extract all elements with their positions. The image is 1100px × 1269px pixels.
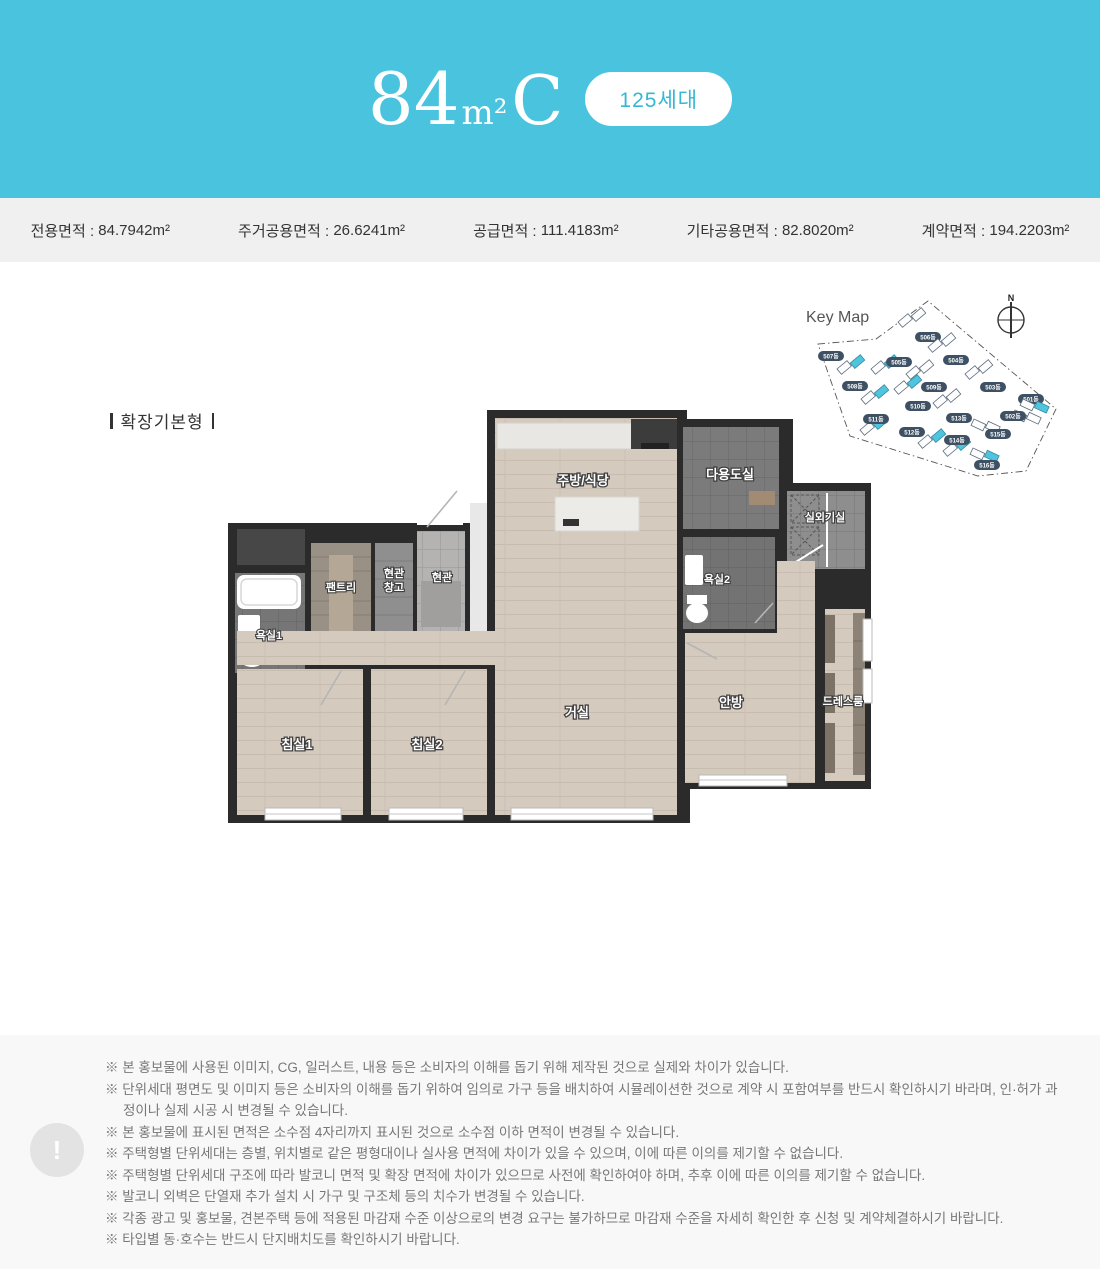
exclamation-icon: ! xyxy=(30,1123,84,1177)
side-shaft xyxy=(470,503,487,631)
building-501: 501동 xyxy=(1012,394,1044,428)
svg-text:512동: 512동 xyxy=(904,429,920,437)
svg-text:N: N xyxy=(1008,293,1015,303)
key-map-title: Key Map xyxy=(806,309,869,326)
building-516: 516동 xyxy=(970,444,1000,470)
svg-text:504동: 504동 xyxy=(948,357,964,365)
area-item-contract: 계약면적194.2203m² xyxy=(888,220,1100,241)
disclaimer-note: ※ 본 홍보물에 사용된 이미지, CG, 일러스트, 내용 등은 소비자의 이… xyxy=(105,1057,1065,1079)
area-item-residential-common: 주거공용면적26.6241m² xyxy=(204,220,439,241)
building-512: 512동 xyxy=(899,426,946,452)
label-utility: 다용도실 xyxy=(706,467,754,482)
title-number: 84 xyxy=(368,63,460,135)
room-living xyxy=(495,627,677,815)
room-outdoor-unit xyxy=(787,491,865,569)
title-unit: m² xyxy=(462,96,508,130)
disclaimer-note: ※ 발코니 외벽은 단열재 추가 설치 시 가구 및 구조체 등의 치수가 변경… xyxy=(105,1186,1065,1208)
title-type-letter: C xyxy=(511,68,563,136)
disclaimer-note: ※ 각종 광고 및 홍보물, 견본주택 등에 적용된 마감재 수준 이상으로의 … xyxy=(105,1208,1065,1230)
page: 84 m² C 125세대 전용면적84.7942m² 주거공용면적26.624… xyxy=(0,0,1100,1269)
svg-text:514동: 514동 xyxy=(949,437,965,445)
label-outdoor-unit: 실외기실 xyxy=(805,510,845,524)
disclaimer-note: ※ 본 홍보물에 표시된 면적은 소수점 4자리까지 표시된 것으로 소수점 이… xyxy=(105,1122,1065,1144)
area-item-other-common: 기타공용면적82.8020m² xyxy=(653,220,888,241)
label-bar xyxy=(212,413,215,429)
label-pantry: 팬트리 xyxy=(326,580,356,594)
building-505: 505동 xyxy=(871,352,912,378)
label-kitchen: 주방/식당 xyxy=(557,473,608,488)
svg-text:502동: 502동 xyxy=(1005,413,1021,421)
room-dressroom xyxy=(825,609,865,781)
area-item-supply: 공급면적111.4183m² xyxy=(439,220,653,241)
entrance-outside xyxy=(417,489,463,527)
room-kitchen xyxy=(495,418,677,632)
building-507: 507동 xyxy=(818,351,865,377)
household-count-badge: 125세대 xyxy=(585,72,732,126)
building-508: 508동 xyxy=(842,381,889,407)
header: 84 m² C 125세대 xyxy=(0,0,1100,198)
building-503: 503동 xyxy=(965,357,1006,392)
svg-text:516동: 516동 xyxy=(979,462,995,470)
svg-text:508동: 508동 xyxy=(847,383,863,391)
unit-type-title: 84 m² C xyxy=(368,63,564,136)
footer: ! ※ 본 홍보물에 사용된 이미지, CG, 일러스트, 내용 등은 소비자의… xyxy=(0,1035,1100,1269)
area-info-bar: 전용면적84.7942m² 주거공용면적26.6241m² 공급면적111.41… xyxy=(0,198,1100,262)
disclaimer-note: ※ 단위세대 평면도 및 이미지 등은 소비자의 이해를 돕기 위하여 임의로 … xyxy=(105,1079,1065,1122)
label-bar xyxy=(110,413,113,429)
compass-icon: N xyxy=(998,293,1024,338)
label-entrance: 현관 xyxy=(432,570,452,584)
svg-text:505동: 505동 xyxy=(891,359,907,367)
label-entry-storage-2: 창고 xyxy=(384,580,404,594)
label-master: 안방 xyxy=(719,695,743,710)
label-living: 거실 xyxy=(565,705,589,720)
building-506: 506동 xyxy=(898,305,941,342)
building-514: 514동 xyxy=(943,434,971,460)
label-dressroom: 드레스룸 xyxy=(823,694,863,708)
svg-text:510동: 510동 xyxy=(910,403,926,411)
disclaimer-note: ※ 주택형별 단위세대 구조에 따라 발코니 면적 및 확장 면적에 차이가 있… xyxy=(105,1165,1065,1187)
label-bedroom2: 침실2 xyxy=(411,737,442,752)
label-bath1: 욕실1 xyxy=(256,628,282,642)
area-item-exclusive: 전용면적84.7942m² xyxy=(0,220,204,241)
main-section: 확장기본형 Key Map N 507동 xyxy=(0,262,1100,1035)
plan-variant-label: 확장기본형 xyxy=(110,408,214,433)
label-bath2: 욕실2 xyxy=(704,572,730,586)
svg-text:503동: 503동 xyxy=(985,384,1001,392)
svg-text:513동: 513동 xyxy=(951,415,967,423)
svg-text:507동: 507동 xyxy=(823,353,839,361)
disclaimer-note: ※ 타입별 동·호수는 반드시 단지배치도를 확인하시기 바랍니다. xyxy=(105,1229,1065,1251)
floor-plan-svg: 주방/식당 다용도실 실외기실 욕실2 팬트리 현관 창고 현관 욕실1 침실1… xyxy=(225,405,885,845)
disclaimer-notes: ※ 본 홍보물에 사용된 이미지, CG, 일러스트, 내용 등은 소비자의 이… xyxy=(105,1057,1065,1251)
floor-plan: 주방/식당 다용도실 실외기실 욕실2 팬트리 현관 창고 현관 욕실1 침실1… xyxy=(225,405,885,850)
closet-top-left xyxy=(237,529,305,565)
svg-text:509동: 509동 xyxy=(926,384,942,392)
disclaimer-note: ※ 주택형별 단위세대는 층별, 위치별로 같은 평형대이나 실사용 면적에 차… xyxy=(105,1143,1065,1165)
label-bedroom1: 침실1 xyxy=(281,737,312,752)
svg-text:515동: 515동 xyxy=(990,431,1006,439)
svg-text:506동: 506동 xyxy=(920,334,936,342)
label-entry-storage-1: 현관 xyxy=(384,566,404,580)
